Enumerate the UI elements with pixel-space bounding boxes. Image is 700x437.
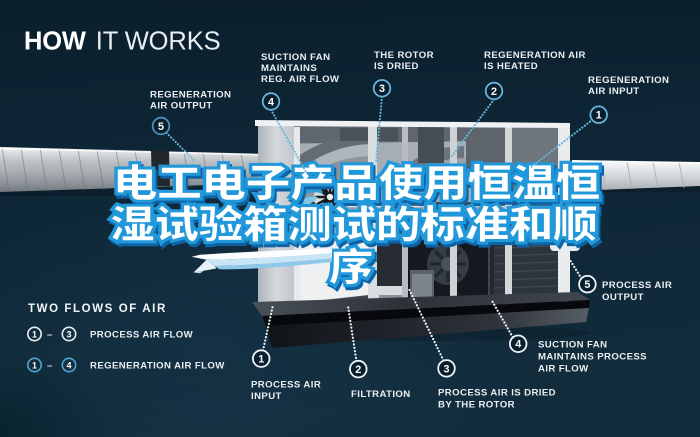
svg-text:3: 3: [379, 83, 385, 95]
svg-text:1: 1: [32, 360, 37, 370]
svg-text:1: 1: [596, 110, 602, 122]
svg-text:3: 3: [66, 329, 71, 339]
svg-text:–: –: [47, 361, 53, 372]
svg-text:2: 2: [491, 86, 497, 98]
svg-text:FILTRATION: FILTRATION: [351, 389, 411, 400]
svg-text:5: 5: [584, 279, 590, 291]
svg-text:1: 1: [32, 329, 37, 339]
svg-text:4: 4: [268, 96, 274, 108]
svg-text:1: 1: [258, 354, 264, 366]
svg-text:HOW IT WORKS: HOW IT WORKS: [24, 28, 221, 56]
svg-text:REGENERATION AIR FLOW: REGENERATION AIR FLOW: [90, 361, 225, 372]
svg-text:TWO FLOWS OF AIR: TWO FLOWS OF AIR: [28, 303, 167, 315]
svg-text:4: 4: [66, 360, 71, 370]
svg-text:PROCESS AIR FLOW: PROCESS AIR FLOW: [90, 330, 194, 341]
svg-text:–: –: [47, 330, 53, 341]
svg-text:3: 3: [443, 363, 449, 375]
svg-text:4: 4: [515, 339, 521, 351]
svg-text:5: 5: [158, 121, 164, 133]
svg-text:2: 2: [355, 364, 361, 376]
